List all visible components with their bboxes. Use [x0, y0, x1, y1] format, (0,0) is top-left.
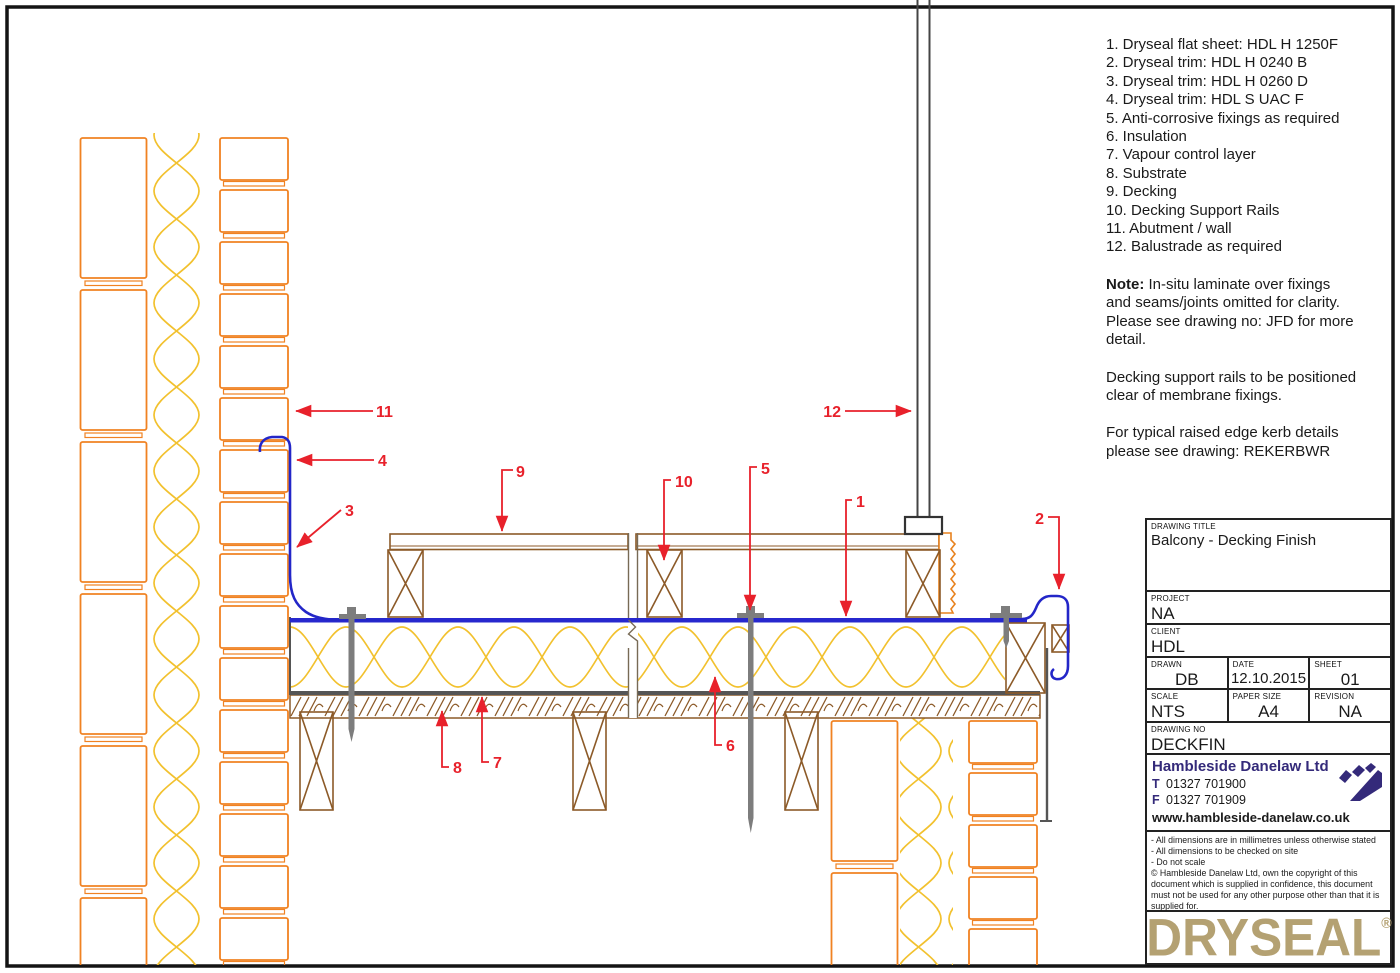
fascia: [1040, 648, 1052, 821]
support-wall: [830, 718, 1039, 965]
drawing-no-row: DRAWING NO DECKFIN: [1147, 723, 1390, 755]
date-label: DATE: [1229, 658, 1309, 669]
legend-item: 11. Abutment / wall: [1106, 220, 1368, 238]
deck-insulation-left: [291, 623, 628, 691]
drawing-title-row: DRAWING TITLE Balcony - Decking Finish: [1147, 520, 1390, 592]
decking-cut-end: [939, 533, 955, 613]
revision-value: NA: [1310, 701, 1390, 722]
legend-item: 7. Vapour control layer: [1106, 146, 1368, 164]
legend-item: 6. Insulation: [1106, 128, 1368, 146]
callout-3: 3: [345, 503, 354, 520]
paper-size-value: A4: [1229, 701, 1309, 722]
drawing-title: Balcony - Decking Finish: [1147, 531, 1390, 549]
note-body: In-situ laminate over fixings and seams/…: [1106, 276, 1354, 348]
callout-11: 11: [376, 404, 393, 421]
balustrade: [905, 0, 942, 534]
date-cell: DATE 12.10.2015: [1227, 658, 1309, 688]
note-paragraph: Note: In-situ laminate over fixings and …: [1106, 276, 1358, 350]
legend-item: 12. Balustrade as required: [1106, 238, 1368, 256]
drawing-no-label: DRAWING NO: [1147, 723, 1390, 734]
project-row: PROJECT NA: [1147, 592, 1390, 625]
disclaimer-line: - Do not scale: [1151, 857, 1386, 868]
legend-item: 4. Dryseal trim: HDL S UAC F: [1106, 91, 1368, 109]
project-label: PROJECT: [1147, 592, 1390, 603]
deck-joists: [300, 712, 818, 810]
decking-support-rails: [388, 550, 940, 617]
callout-1: 1: [856, 494, 865, 511]
revision-label: REVISION: [1310, 690, 1390, 701]
callout-9: 9: [516, 464, 525, 481]
scale-value: NTS: [1147, 701, 1227, 722]
client-label: CLIENT: [1147, 625, 1390, 636]
registered-mark: ®: [1381, 914, 1391, 932]
copyright-body: Hambleside Danelaw Ltd, own the copyrigh…: [1151, 868, 1379, 910]
sheet-label: SHEET: [1310, 658, 1390, 669]
drawing-sheet: 1 2 3 4 5 6 7 8 9 10 11 12 1. Dryseal fl…: [0, 0, 1400, 973]
note-paragraph-3: For typical raised edge kerb details ple…: [1106, 424, 1358, 461]
phone-label: T: [1152, 777, 1166, 791]
legend-item: 2. Dryseal trim: HDL H 0240 B: [1106, 54, 1368, 72]
paper-size-cell: PAPER SIZE A4: [1227, 690, 1309, 721]
drawn-cell: DRAWN DB: [1147, 658, 1227, 688]
vapour-control-layer: [290, 691, 1040, 695]
note-paragraph-2: Decking support rails to be positioned c…: [1106, 369, 1358, 406]
revision-cell: REVISION NA: [1308, 690, 1390, 721]
sheet-cell: SHEET 01: [1308, 658, 1390, 688]
drawn-label: DRAWN: [1147, 658, 1227, 669]
disclaimer-line: - All dimensions are in millimetres unle…: [1151, 835, 1386, 846]
callout-4: 4: [378, 453, 387, 470]
date-value: 12.10.2015: [1229, 669, 1309, 687]
edge-kerb: [1006, 623, 1069, 693]
dryseal-logo: DRYSEAL®: [1146, 908, 1391, 968]
callout-7: 7: [493, 755, 502, 772]
scale-cell: SCALE NTS: [1147, 690, 1227, 721]
legend-item: 10. Decking Support Rails: [1106, 202, 1368, 220]
client-row: CLIENT HDL: [1147, 625, 1390, 658]
phone-value: 01327 701900: [1166, 777, 1246, 791]
callout-10: 10: [675, 474, 693, 491]
deck-insulation-right: [638, 623, 1005, 691]
fax-label: F: [1152, 793, 1166, 807]
note-label: Note:: [1106, 276, 1144, 293]
abutment-wall: [79, 133, 290, 965]
callout-12: 12: [823, 404, 841, 421]
legend-item: 8. Substrate: [1106, 165, 1368, 183]
project-value: NA: [1147, 603, 1390, 624]
legend-item: 3. Dryseal trim: HDL H 0260 D: [1106, 73, 1368, 91]
callout-6: 6: [726, 738, 735, 755]
fax-value: 01327 701909: [1166, 793, 1246, 807]
copyright-text: © Hambleside Danelaw Ltd, own the copyri…: [1151, 868, 1386, 911]
legend-item: 9. Decking: [1106, 183, 1368, 201]
disclaimer-block: - All dimensions are in millimetres unle…: [1147, 832, 1390, 912]
client-value: HDL: [1147, 636, 1390, 657]
sheet-value: 01: [1310, 669, 1390, 690]
scale-label: SCALE: [1147, 690, 1227, 701]
scale-paper-revision-row: SCALE NTS PAPER SIZE A4 REVISION NA: [1147, 690, 1390, 723]
dryseal-membrane: [290, 618, 1027, 623]
company-block: Hambleside Danelaw Ltd T01327 701900 F01…: [1147, 755, 1390, 832]
break-symbol: [629, 533, 638, 718]
legend: 1. Dryseal flat sheet: HDL H 1250F 2. Dr…: [1106, 36, 1368, 461]
legend-item: 5. Anti-corrosive fixings as required: [1106, 110, 1368, 128]
hambleside-logo-icon: [1338, 761, 1384, 808]
paper-size-label: PAPER SIZE: [1229, 690, 1309, 701]
drawing-title-label: DRAWING TITLE: [1147, 520, 1390, 531]
drawn-value: DB: [1147, 669, 1227, 690]
drawn-date-sheet-row: DRAWN DB DATE 12.10.2015 SHEET 01: [1147, 658, 1390, 690]
company-website: www.hambleside-danelaw.co.uk: [1152, 810, 1385, 825]
callout-8: 8: [453, 760, 462, 777]
callout-2: 2: [1035, 511, 1044, 528]
brand-logo-row: DRYSEAL®: [1147, 912, 1390, 963]
substrate: [290, 695, 1040, 718]
edge-trim: [1002, 596, 1068, 679]
drawing-no-value: DECKFIN: [1147, 734, 1390, 755]
callout-5: 5: [761, 461, 770, 478]
disclaimer-line: - All dimensions to be checked on site: [1151, 846, 1386, 857]
legend-item: 1. Dryseal flat sheet: HDL H 1250F: [1106, 36, 1368, 54]
title-block: DRAWING TITLE Balcony - Decking Finish P…: [1145, 518, 1392, 965]
dryseal-wordmark: DRYSEAL: [1146, 908, 1381, 967]
